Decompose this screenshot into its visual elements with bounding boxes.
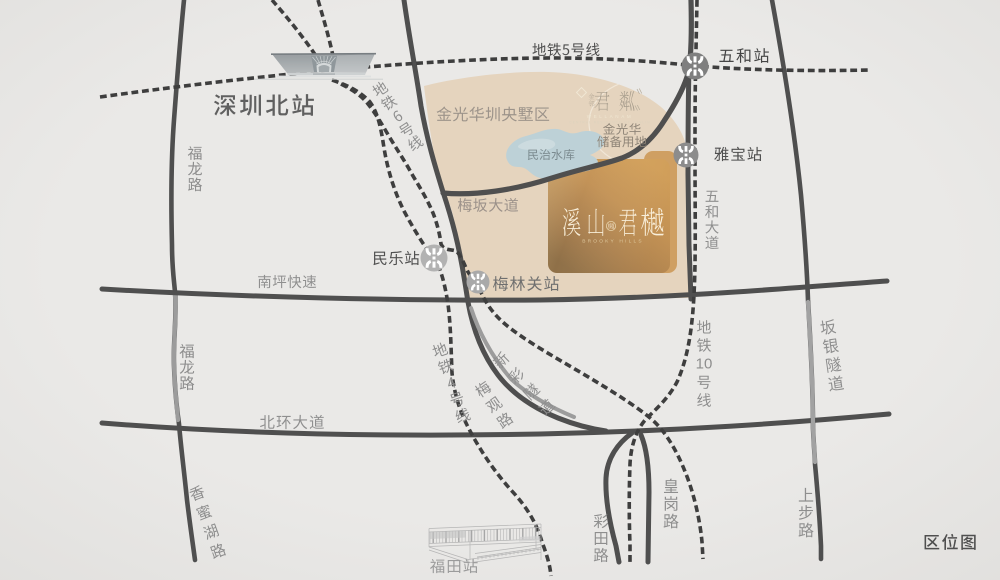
svg-text:10: 10 xyxy=(696,356,713,373)
svg-text:BROOKY HILLS: BROOKY HILLS xyxy=(582,239,644,245)
svg-text:CENTRAL RESIDENCE OF JUNLIN: CENTRAL RESIDENCE OF JUNLIN xyxy=(569,121,650,125)
svg-text:WELLANAM: WELLANAM xyxy=(587,114,634,119)
